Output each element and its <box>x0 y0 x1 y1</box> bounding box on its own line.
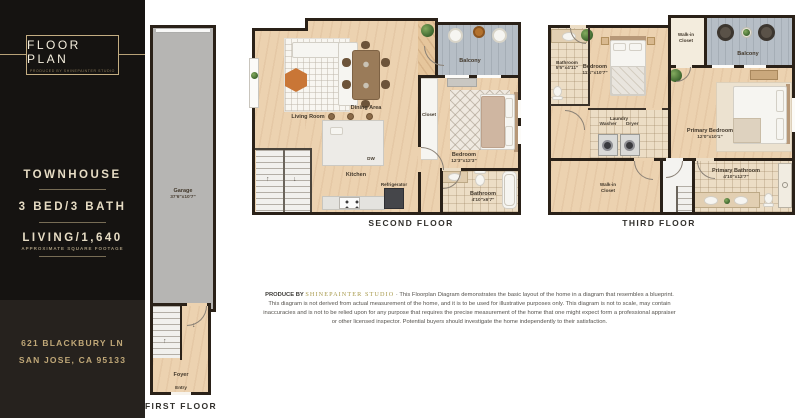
window <box>518 100 521 118</box>
room-label-walkin-closet-bottom: Walk-in Closet <box>594 182 622 194</box>
wall <box>252 28 308 31</box>
disclaimer: PRODUCE BY SHINEPAINTER STUDIO · This Fl… <box>262 290 677 327</box>
bathroom-sink <box>734 196 748 205</box>
entry-opening <box>171 392 191 395</box>
plant <box>724 198 730 204</box>
shower-drain <box>782 182 788 188</box>
window <box>445 75 469 78</box>
room-garage <box>150 25 216 312</box>
logo-title: FLOOR PLAN <box>27 38 118 66</box>
logo-box: FLOOR PLAN PRODUCED BY SHINEPAINTER STUD… <box>26 35 119 75</box>
wall <box>435 22 521 25</box>
wall <box>660 158 663 215</box>
window <box>792 98 795 132</box>
bar-stool <box>366 113 373 120</box>
label-refrigerator: Refrigerator <box>381 182 407 188</box>
wall <box>668 25 671 68</box>
bed-pillow <box>505 98 513 118</box>
dresser <box>750 70 778 80</box>
window <box>712 65 734 68</box>
stairs-arrow-icon: ↑ <box>266 176 270 183</box>
room-label-balcony: Balcony <box>459 58 480 65</box>
garage-door <box>156 29 210 33</box>
wall <box>692 158 695 215</box>
plant <box>421 24 434 37</box>
wall <box>704 15 707 68</box>
bed-blanket <box>611 66 645 95</box>
stair-divider <box>676 186 678 212</box>
property-type: TOWNHOUSE <box>0 169 145 181</box>
window <box>744 65 766 68</box>
washer-door <box>602 140 613 151</box>
dining-chair <box>342 80 351 89</box>
wall <box>548 25 671 28</box>
room-label-primary-bedroom: Primary Bedroom 12'0"x10'1" <box>687 128 733 141</box>
wall <box>418 75 421 215</box>
bar-stool <box>347 113 354 120</box>
room-label-living-room: Living Room <box>291 114 324 121</box>
wall <box>180 306 182 360</box>
sidebar-divider <box>39 189 106 190</box>
wicker-chair <box>717 24 734 41</box>
wall <box>310 148 312 212</box>
sidebar-divider <box>39 222 106 223</box>
refrigerator <box>384 188 404 209</box>
living-area: LIVING/1,640 <box>0 232 145 244</box>
wall <box>548 25 551 215</box>
stair-divider <box>283 150 285 212</box>
dining-chair <box>342 58 351 67</box>
floor-plan-sheet: FLOOR PLAN PRODUCED BY SHINEPAINTER STUD… <box>0 0 800 418</box>
room-label-laundry: Laundry Washer Dryer <box>599 116 638 128</box>
balcony-table <box>473 26 485 38</box>
dryer-door <box>624 140 635 151</box>
third-floor-caption: THIRD FLOOR <box>622 218 695 228</box>
dining-table <box>352 50 380 100</box>
bathroom-sink <box>704 196 718 205</box>
second-floor-caption: SECOND FLOOR <box>368 218 453 228</box>
wall <box>252 28 255 215</box>
beds-baths: 3 BED/3 BATH <box>0 201 145 213</box>
bed-pillow <box>629 43 642 51</box>
first-floor-caption: FIRST FLOOR <box>145 401 217 411</box>
room-label-bathroom: Bathroom 4'10"x6'7" <box>470 191 496 204</box>
window <box>477 75 501 78</box>
address-line2: SAN JOSE, CA 95133 <box>0 355 145 365</box>
toilet-tank <box>552 96 563 100</box>
room-label-closet: Closet <box>422 112 436 118</box>
room-label-entry: Entry <box>175 385 187 391</box>
toilet <box>475 174 485 186</box>
stairs-first-floor <box>153 306 180 358</box>
nightstand <box>647 37 655 45</box>
logo-line-right <box>119 54 145 55</box>
bed-blanket <box>481 96 505 148</box>
wall <box>518 22 521 215</box>
plant <box>251 72 258 79</box>
room-label-walkin-closet-top: Walk-in Closet <box>672 32 700 44</box>
wall <box>668 15 795 18</box>
bed-pillow <box>776 118 784 140</box>
disclaimer-studio-name: SHINEPAINTER STUDIO <box>305 291 394 298</box>
dining-chair <box>381 80 390 89</box>
wall <box>254 148 312 150</box>
room-label-kitchen: Kitchen <box>346 172 366 179</box>
bed-pillow <box>613 43 626 51</box>
kitchen-sink <box>330 127 343 135</box>
bar-stool <box>328 113 335 120</box>
bed-pillow <box>776 90 784 112</box>
window <box>518 126 521 144</box>
disclaimer-produced-by: PRODUCE BY <box>265 292 304 298</box>
wall <box>252 212 521 215</box>
room-label-bedroom: Bedroom 12'3"x12'3" <box>451 152 477 165</box>
stove <box>339 197 360 209</box>
room-label-bathroom-small: Bathroom 5'5"x4'11" <box>553 60 581 72</box>
sidebar-divider <box>39 256 106 257</box>
stairs-arrow-icon: ↓ <box>293 176 297 183</box>
room-label-bedroom: Bedroom 11'1"x10'7" <box>582 64 607 77</box>
room-label-garage: Garage 37'6"x10'7" <box>170 188 196 201</box>
room-label-foyer: Foyer <box>174 372 189 379</box>
wall <box>548 212 795 215</box>
stairs-arrow-icon: ↑ <box>163 338 167 345</box>
label-dishwasher: DW <box>367 156 375 162</box>
bed-throw <box>733 118 761 143</box>
dining-chair <box>361 41 370 49</box>
stairs-third-floor <box>676 186 692 212</box>
door-opening <box>646 108 662 110</box>
balcony-chair <box>492 28 507 43</box>
window-ledge <box>249 58 259 108</box>
wall <box>305 18 438 21</box>
toilet-tank <box>763 203 774 207</box>
plant <box>743 29 750 36</box>
logo-subtitle: PRODUCED BY SHINEPAINTER STUDIO <box>30 69 115 73</box>
wall <box>418 75 521 78</box>
wicker-chair <box>758 24 775 41</box>
room-label-primary-bathroom: Primary Bathroom 4'10"x12'7" <box>712 168 760 181</box>
dining-chair <box>381 58 390 67</box>
balcony-chair <box>448 28 463 43</box>
address-line1: 621 BLACKBURY LN <box>0 338 145 348</box>
wall <box>668 65 671 160</box>
nightstand <box>601 37 609 45</box>
room-label-balcony: Balcony <box>737 51 758 58</box>
room-label-dining-area: Dining Area <box>351 105 382 112</box>
dresser <box>447 78 477 87</box>
logo-line-left <box>0 54 26 55</box>
bathtub-inner <box>504 174 515 206</box>
wall <box>550 104 590 106</box>
bed-pillow <box>505 126 513 146</box>
living-area-note: APPROXIMATE SQUARE FOOTAGE <box>0 246 145 251</box>
